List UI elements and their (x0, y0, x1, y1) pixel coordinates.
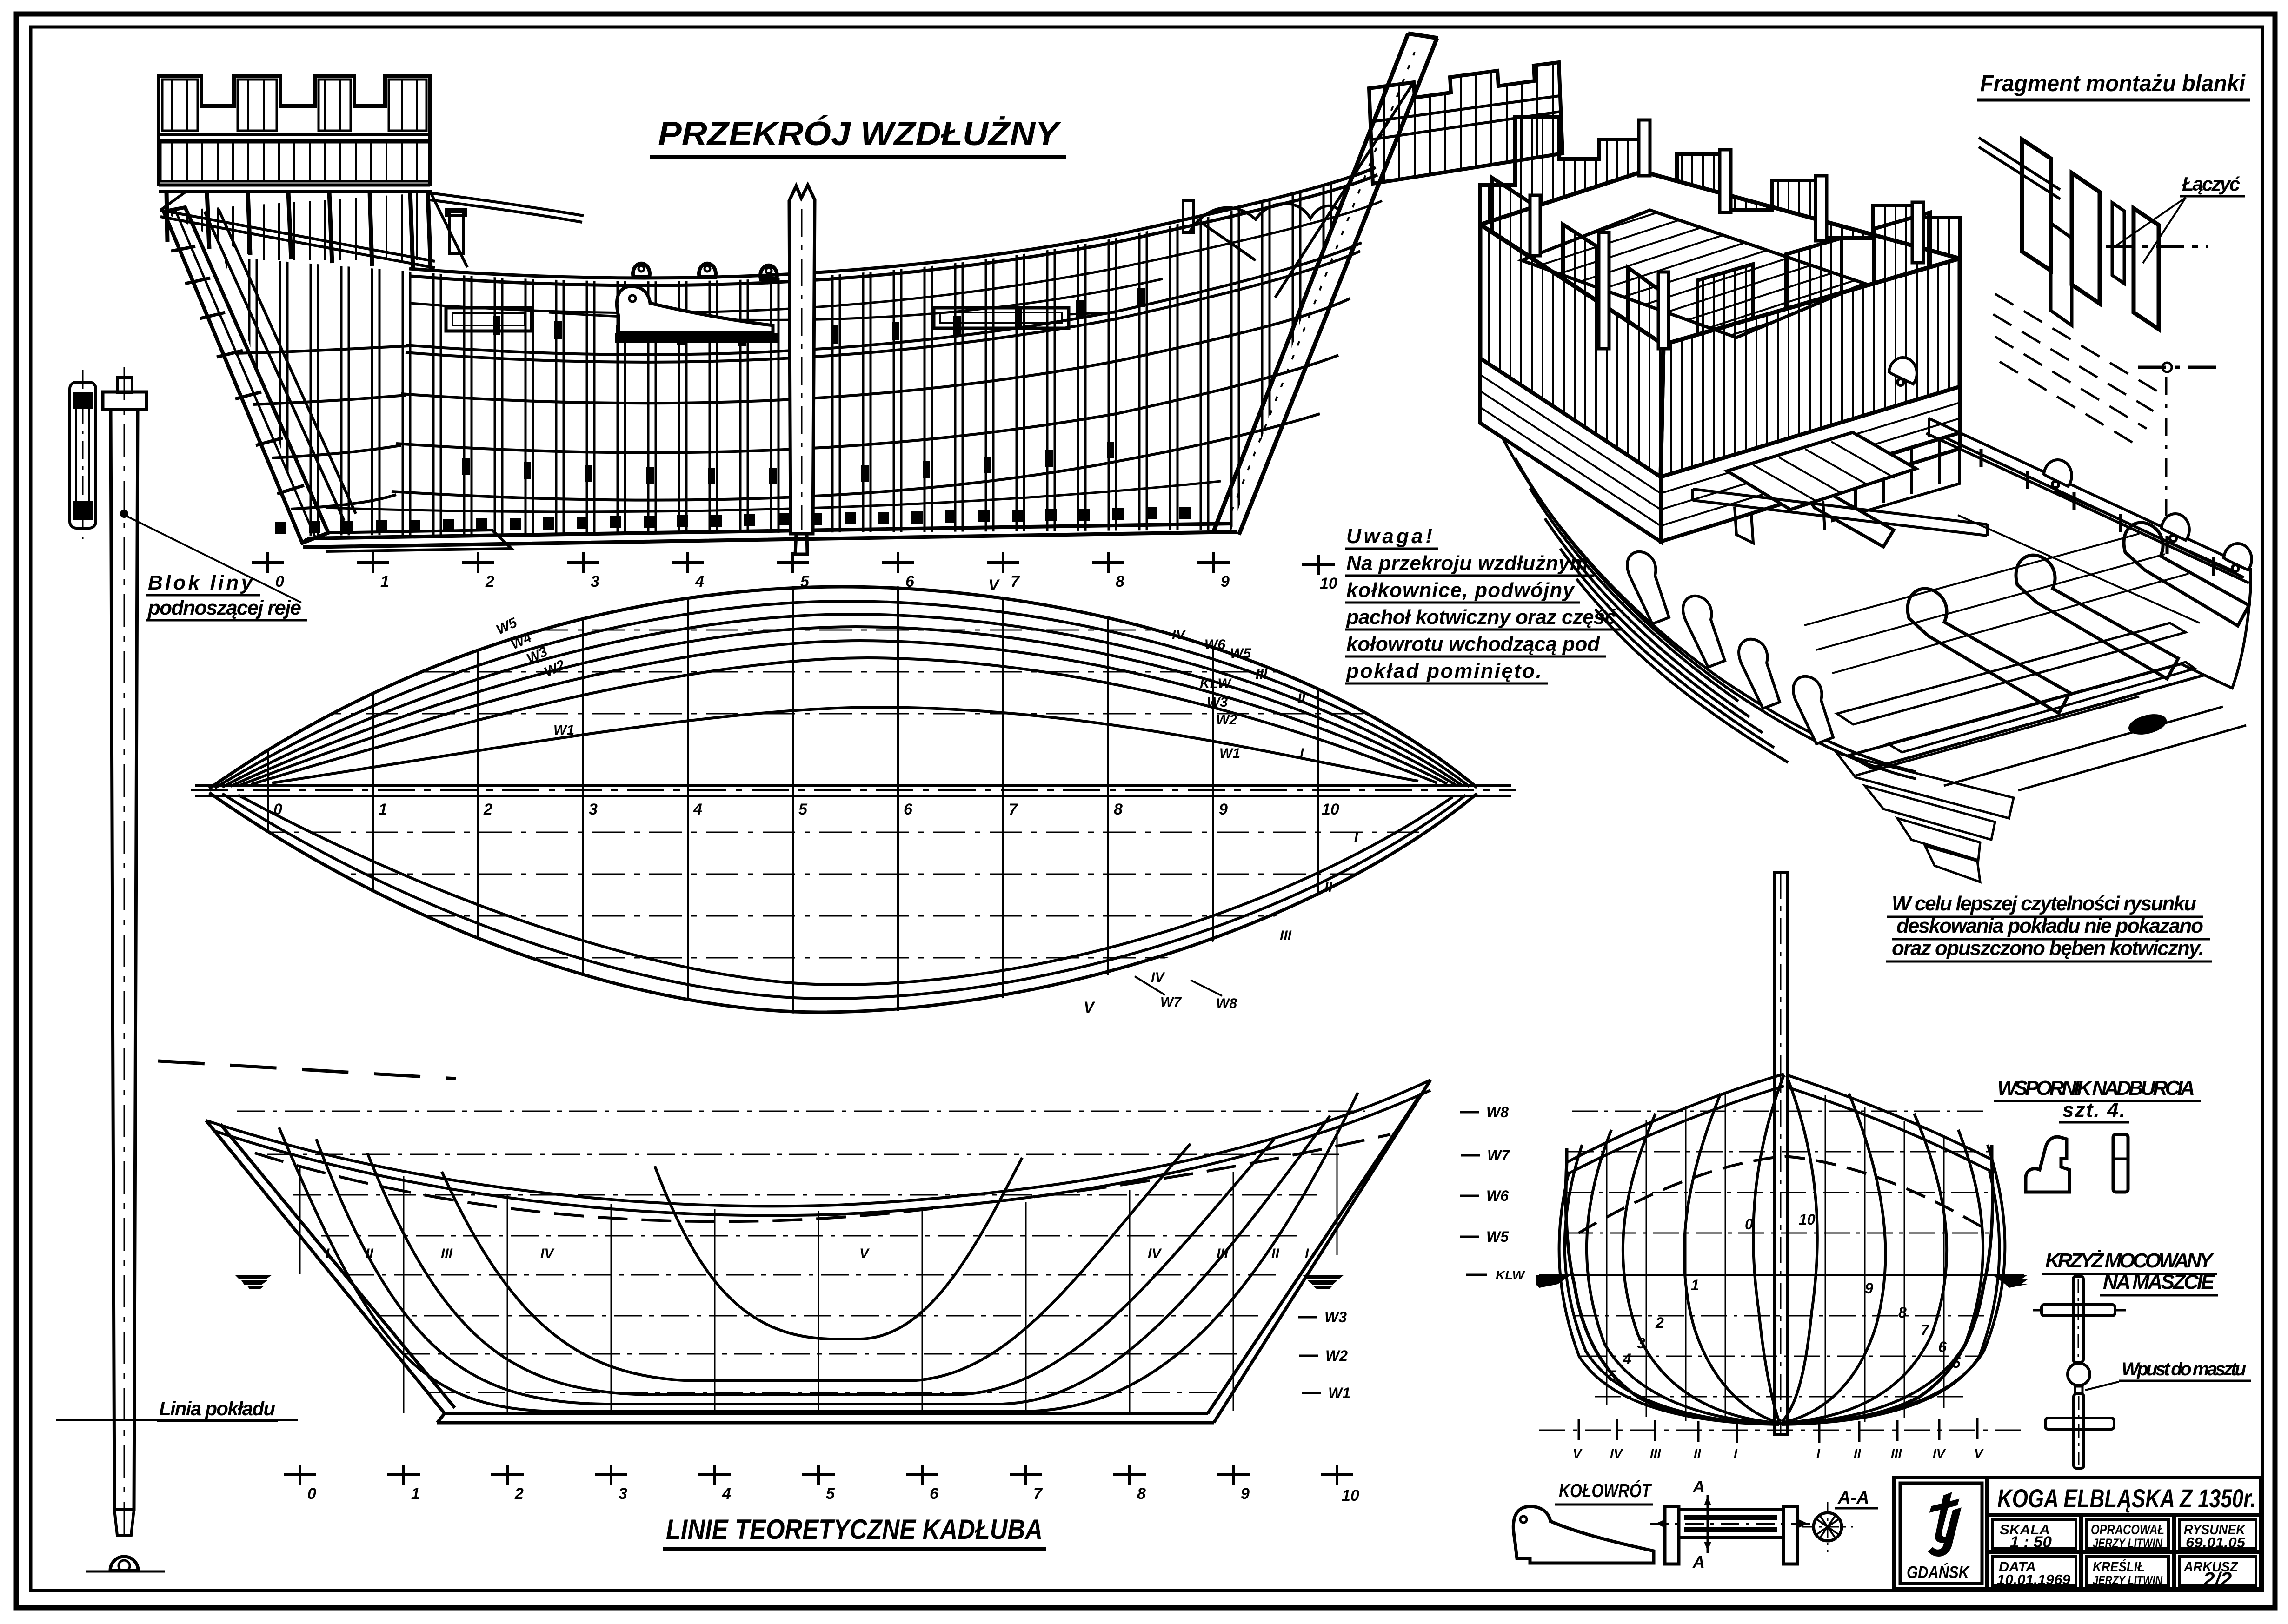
svg-text:W1: W1 (1328, 1385, 1350, 1401)
svg-text:II: II (1297, 691, 1305, 706)
svg-text:5: 5 (826, 1485, 835, 1503)
svg-text:III: III (1650, 1446, 1662, 1461)
svg-text:Uwaga!: Uwaga! (1346, 525, 1432, 548)
svg-text:W8: W8 (1486, 1104, 1509, 1120)
svg-text:II: II (1271, 1246, 1279, 1261)
svg-text:W3: W3 (1207, 695, 1228, 710)
svg-text:II: II (1324, 880, 1332, 895)
svg-text:3: 3 (1637, 1335, 1645, 1352)
svg-text:4: 4 (693, 801, 702, 818)
svg-text:pokład pominięto.: pokład pominięto. (1346, 660, 1542, 683)
svg-text:1: 1 (411, 1485, 420, 1503)
svg-text:4: 4 (695, 573, 704, 590)
svg-text:2: 2 (514, 1485, 524, 1503)
svg-text:KREŚLIŁ: KREŚLIŁ (2093, 1559, 2145, 1575)
svg-text:8: 8 (1137, 1485, 1146, 1503)
svg-text:2: 2 (1655, 1314, 1664, 1331)
svg-text:9: 9 (1241, 1485, 1250, 1503)
svg-text:III: III (1891, 1446, 1902, 1461)
svg-text:3: 3 (591, 573, 599, 590)
svg-text:3: 3 (589, 801, 598, 818)
svg-text:pachoł kotwiczny oraz część: pachoł kotwiczny oraz część (1346, 606, 1616, 629)
svg-text:6: 6 (904, 801, 913, 818)
svg-text:IV: IV (1172, 627, 1186, 643)
svg-text:III: III (441, 1246, 453, 1261)
svg-text:KOGA ELBLĄSKA Z 1350r.: KOGA ELBLĄSKA Z 1350r. (1997, 1484, 2256, 1513)
svg-text:V: V (1084, 999, 1096, 1016)
svg-text:W5: W5 (1486, 1228, 1509, 1245)
svg-text:10.01.1969: 10.01.1969 (1997, 1571, 2071, 1588)
svg-text:W3: W3 (1324, 1309, 1347, 1326)
svg-text:V: V (1573, 1446, 1583, 1461)
svg-text:0: 0 (273, 801, 282, 818)
svg-text:OPRACOWAŁ: OPRACOWAŁ (2091, 1522, 2164, 1538)
svg-text:A: A (1692, 1477, 1705, 1496)
svg-text:5: 5 (1952, 1354, 1961, 1371)
svg-text:Linia pokładu: Linia pokładu (159, 1398, 275, 1419)
svg-text:KLW: KLW (1200, 676, 1232, 691)
svg-text:9: 9 (1865, 1280, 1873, 1297)
svg-text:II: II (1694, 1446, 1702, 1461)
svg-text:IV: IV (540, 1246, 555, 1261)
svg-text:W celu lepszej czytelności rys: W celu lepszej czytelności rysunku (1892, 892, 2196, 915)
svg-text:7: 7 (1011, 573, 1020, 590)
svg-text:9: 9 (1221, 573, 1230, 590)
svg-text:KRZYŻ MOCOWANY: KRZYŻ MOCOWANY (2045, 1249, 2215, 1272)
svg-text:2: 2 (483, 801, 492, 818)
svg-text:GDAŃSK: GDAŃSK (1907, 1563, 1970, 1582)
svg-text:V: V (1974, 1446, 1984, 1461)
svg-text:W6: W6 (1204, 637, 1225, 652)
svg-text:Wpust do masztu: Wpust do masztu (2122, 1359, 2246, 1379)
svg-text:0: 0 (1745, 1216, 1753, 1233)
svg-text:II: II (366, 1246, 373, 1261)
svg-text:I: I (1305, 1246, 1309, 1261)
svg-text:W2: W2 (1325, 1347, 1348, 1364)
svg-text:9: 9 (1219, 801, 1228, 818)
svg-text:7: 7 (1009, 801, 1018, 818)
svg-text:10: 10 (1342, 1487, 1359, 1505)
svg-text:I: I (326, 1246, 330, 1261)
svg-text:JERZY LITWIN: JERZY LITWIN (2093, 1536, 2162, 1550)
svg-text:IV: IV (1151, 970, 1165, 985)
svg-text:W1: W1 (1219, 746, 1240, 761)
svg-text:W7: W7 (1487, 1147, 1510, 1164)
svg-text:W6: W6 (1486, 1187, 1509, 1204)
svg-text:2: 2 (485, 573, 494, 590)
svg-text:A: A (1692, 1552, 1705, 1571)
svg-text:W7: W7 (1160, 994, 1182, 1010)
svg-text:10: 10 (1799, 1211, 1816, 1228)
svg-text:II: II (1854, 1446, 1862, 1461)
svg-text:I: I (1816, 1446, 1821, 1461)
svg-text:2/2: 2/2 (2203, 1568, 2232, 1591)
svg-text:W1: W1 (553, 723, 574, 738)
svg-text:V: V (859, 1246, 870, 1261)
svg-text:Fragment montażu blanki: Fragment montażu blanki (1980, 70, 2246, 96)
svg-text:10: 10 (1320, 575, 1337, 592)
svg-text:1: 1 (379, 801, 387, 818)
svg-text:W5: W5 (1230, 646, 1251, 661)
svg-text:6: 6 (930, 1485, 939, 1503)
svg-text:JERZY LITWIN: JERZY LITWIN (2093, 1573, 2162, 1587)
svg-text:I: I (1734, 1446, 1738, 1461)
svg-text:PRZEKRÓJ WZDŁUŻNY: PRZEKRÓJ WZDŁUŻNY (658, 115, 1062, 152)
svg-text:IV: IV (1148, 1246, 1162, 1261)
svg-text:IV: IV (1933, 1446, 1946, 1461)
svg-text:W2: W2 (1216, 712, 1237, 728)
svg-text:III: III (1256, 667, 1268, 682)
svg-text:7: 7 (1921, 1322, 1930, 1339)
svg-text:III: III (1280, 928, 1292, 943)
svg-text:4: 4 (722, 1485, 731, 1503)
svg-text:0: 0 (307, 1485, 316, 1503)
svg-text:Łączyć: Łączyć (2182, 173, 2241, 195)
svg-text:KLW: KLW (1496, 1268, 1526, 1282)
svg-text:3: 3 (619, 1485, 627, 1503)
svg-text:W8: W8 (1216, 996, 1237, 1011)
svg-text:III: III (1217, 1246, 1229, 1261)
svg-text:69.01.05: 69.01.05 (2186, 1534, 2246, 1551)
svg-text:8: 8 (1116, 573, 1124, 590)
svg-text:1 : 50: 1 : 50 (2010, 1533, 2052, 1551)
svg-text:0: 0 (275, 573, 284, 590)
svg-text:10: 10 (1322, 801, 1339, 818)
svg-text:LINIE TEORETYCZNE KADŁUBA: LINIE TEORETYCZNE KADŁUBA (666, 1514, 1043, 1545)
svg-text:kołkownice, podwójny: kołkownice, podwójny (1346, 579, 1576, 602)
svg-text:kołowrotu wchodzącą pod: kołowrotu wchodzącą pod (1346, 633, 1600, 656)
svg-text:WSPORNIK NADBURCIA: WSPORNIK NADBURCIA (1997, 1077, 2195, 1100)
svg-text:A-A: A-A (1837, 1488, 1869, 1508)
svg-text:Na przekroju wzdłużnym: Na przekroju wzdłużnym (1346, 552, 1588, 575)
svg-text:5: 5 (1608, 1367, 1617, 1384)
svg-text:5: 5 (798, 801, 808, 818)
svg-text:I: I (1300, 746, 1304, 761)
svg-text:1: 1 (1691, 1277, 1699, 1293)
svg-text:KOŁOWRÓT: KOŁOWRÓT (1559, 1480, 1652, 1501)
svg-text:8: 8 (1114, 801, 1123, 818)
svg-text:8: 8 (1898, 1304, 1907, 1321)
svg-text:4: 4 (1623, 1351, 1631, 1367)
svg-text:V: V (988, 577, 1000, 594)
svg-text:6: 6 (1938, 1339, 1947, 1355)
svg-text:IV: IV (1610, 1446, 1623, 1461)
svg-text:podnoszącej reje: podnoszącej reje (147, 597, 301, 619)
svg-text:I: I (1354, 829, 1358, 845)
svg-text:1: 1 (380, 573, 389, 590)
svg-text:7: 7 (1033, 1485, 1043, 1503)
